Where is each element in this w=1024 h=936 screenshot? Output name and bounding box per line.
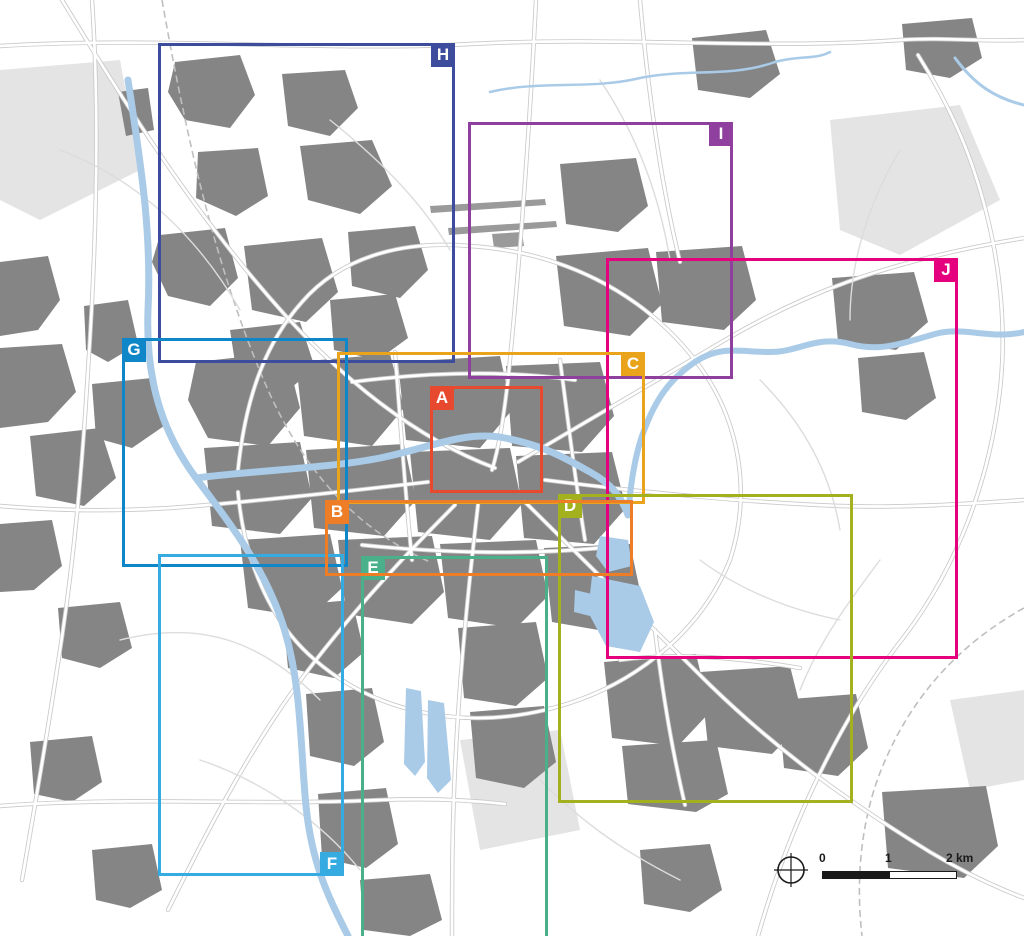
scale-bar-first-km — [822, 871, 889, 879]
scale-tick-1: 1 — [885, 851, 892, 865]
frame-label-F: F — [320, 852, 344, 876]
frame-label-B: B — [325, 500, 349, 524]
map-canvas: IHJGFECDBA 0 1 2 km — [0, 0, 1024, 936]
map-frame-F: F — [158, 554, 344, 876]
map-frame-G: G — [122, 338, 348, 567]
frame-label-I: I — [709, 122, 733, 146]
frame-label-J: J — [934, 258, 958, 282]
map-frame-B: B — [325, 500, 633, 576]
compass-icon — [773, 852, 809, 888]
frame-label-C: C — [621, 352, 645, 376]
scale-tick-2km: 2 km — [946, 851, 973, 865]
frame-label-H: H — [431, 43, 455, 67]
scale-tick-0: 0 — [819, 851, 826, 865]
map-frame-H: H — [158, 43, 455, 363]
frame-label-A: A — [430, 386, 454, 410]
map-frame-A: A — [430, 386, 543, 493]
scale-legend: 0 1 2 km — [773, 846, 1023, 894]
frame-overlay: IHJGFECDBA — [0, 0, 1024, 936]
frame-label-G: G — [122, 338, 146, 362]
scale-bar-second-km — [889, 871, 957, 879]
map-frame-E: E — [361, 556, 548, 936]
